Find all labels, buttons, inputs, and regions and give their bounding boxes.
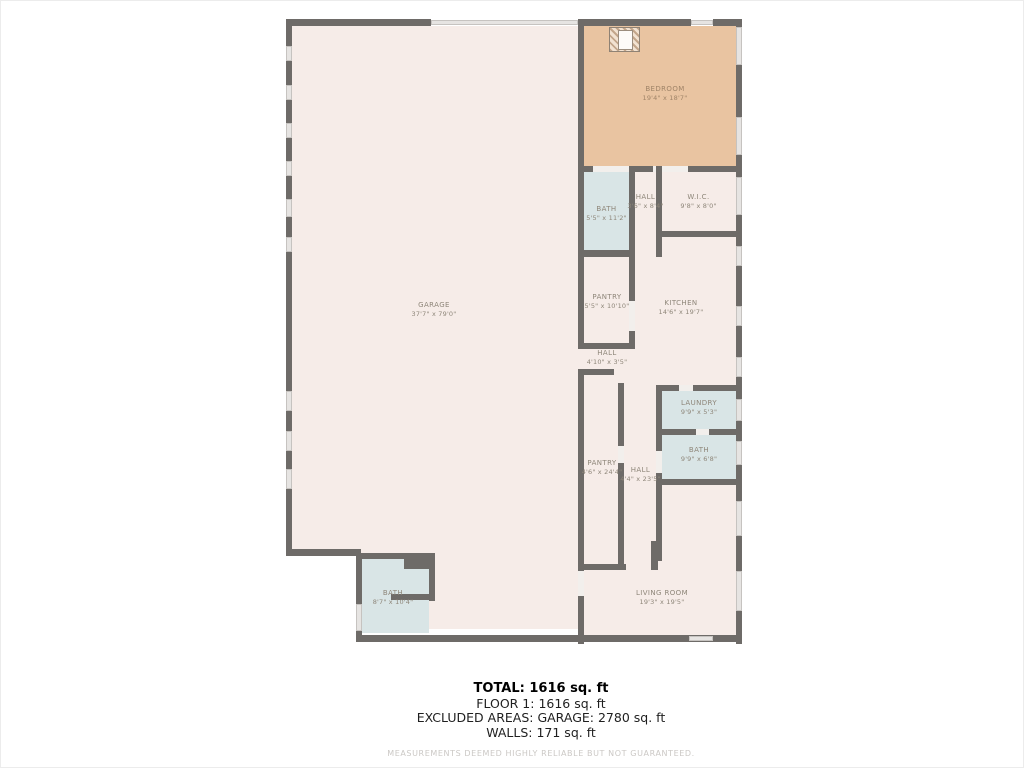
room-label-wic: W.I.C. 9'8" x 8'0" xyxy=(661,193,736,210)
summary-floor1: FLOOR 1: 1616 sq. ft xyxy=(313,697,769,712)
room-label-bath: BATH 9'9" x 6'8" xyxy=(662,446,736,463)
summary-walls: WALLS: 171 sq. ft xyxy=(313,726,769,741)
window-marker xyxy=(431,20,578,25)
room-label-hall: HALL 4'10" x 3'5" xyxy=(581,349,633,366)
floor-plan: GARAGE 37'7" x 79'0" BEDROOM 19'4" x 18'… xyxy=(0,0,1024,768)
wall-segment xyxy=(578,250,635,257)
wall-segment xyxy=(656,479,742,485)
door-opening xyxy=(679,385,693,391)
summary-total: TOTAL: 1616 sq. ft xyxy=(313,682,769,697)
window-marker xyxy=(286,85,292,100)
window-marker xyxy=(736,306,742,326)
window-marker xyxy=(286,123,292,138)
window-marker xyxy=(286,237,292,252)
room-label-hall: HALL 4'4" x 23'5" xyxy=(618,466,663,483)
window-marker xyxy=(736,27,742,65)
window-marker xyxy=(736,357,742,377)
wall-segment xyxy=(584,369,614,375)
door-opening xyxy=(696,429,709,435)
fireplace-icon xyxy=(609,27,640,52)
wall-segment xyxy=(651,541,658,570)
wall-segment xyxy=(656,231,742,237)
room-label-living-room: LIVING ROOM 19'3" x 19'5" xyxy=(612,589,712,606)
wall-segment xyxy=(656,385,742,391)
room-label-bath: BATH 8'7" x 10'4" xyxy=(359,589,427,606)
garage-floor xyxy=(292,26,578,629)
window-marker xyxy=(736,117,742,155)
window-marker xyxy=(286,161,292,176)
room-label-garage: GARAGE 37'7" x 79'0" xyxy=(394,301,474,318)
area-summary: TOTAL: 1616 sq. ft FLOOR 1: 1616 sq. ft … xyxy=(313,682,769,762)
wall-segment xyxy=(656,166,662,257)
window-marker xyxy=(689,636,713,641)
window-marker xyxy=(691,20,713,25)
fireplace-opening xyxy=(618,30,633,50)
wall-segment xyxy=(584,564,626,570)
door-opening xyxy=(578,571,584,596)
window-marker xyxy=(736,399,742,421)
wall-segment xyxy=(578,19,691,26)
wall-segment xyxy=(286,549,361,556)
exterior-mask xyxy=(286,556,356,646)
room-label-bedroom: BEDROOM 19'4" x 18'7" xyxy=(615,85,715,102)
wall-segment xyxy=(286,19,431,26)
window-marker xyxy=(356,604,362,631)
window-marker xyxy=(736,246,742,266)
window-marker xyxy=(286,469,292,489)
room-label-kitchen: KITCHEN 14'6" x 19'7" xyxy=(646,299,716,316)
wall-segment xyxy=(736,19,742,644)
window-marker xyxy=(736,501,742,536)
window-marker xyxy=(286,431,292,451)
wall-segment xyxy=(629,166,635,256)
window-marker xyxy=(736,441,742,465)
window-marker xyxy=(286,391,292,411)
room-label-pantry: PANTRY 5'5" x 10'10" xyxy=(581,293,633,310)
measurement-disclaimer: MEASUREMENTS DEEMED HIGHLY RELIABLE BUT … xyxy=(313,747,769,762)
window-marker xyxy=(736,571,742,611)
window-marker xyxy=(286,46,292,61)
wall-segment xyxy=(404,553,433,569)
door-opening xyxy=(593,166,629,172)
wall-segment xyxy=(356,635,742,642)
window-marker xyxy=(286,199,292,217)
wall-segment xyxy=(578,19,584,644)
summary-excluded-areas: EXCLUDED AREAS: GARAGE: 2780 sq. ft xyxy=(313,711,769,726)
window-marker xyxy=(736,177,742,215)
room-label-laundry: LAUNDRY 9'9" x 5'3" xyxy=(662,399,736,416)
